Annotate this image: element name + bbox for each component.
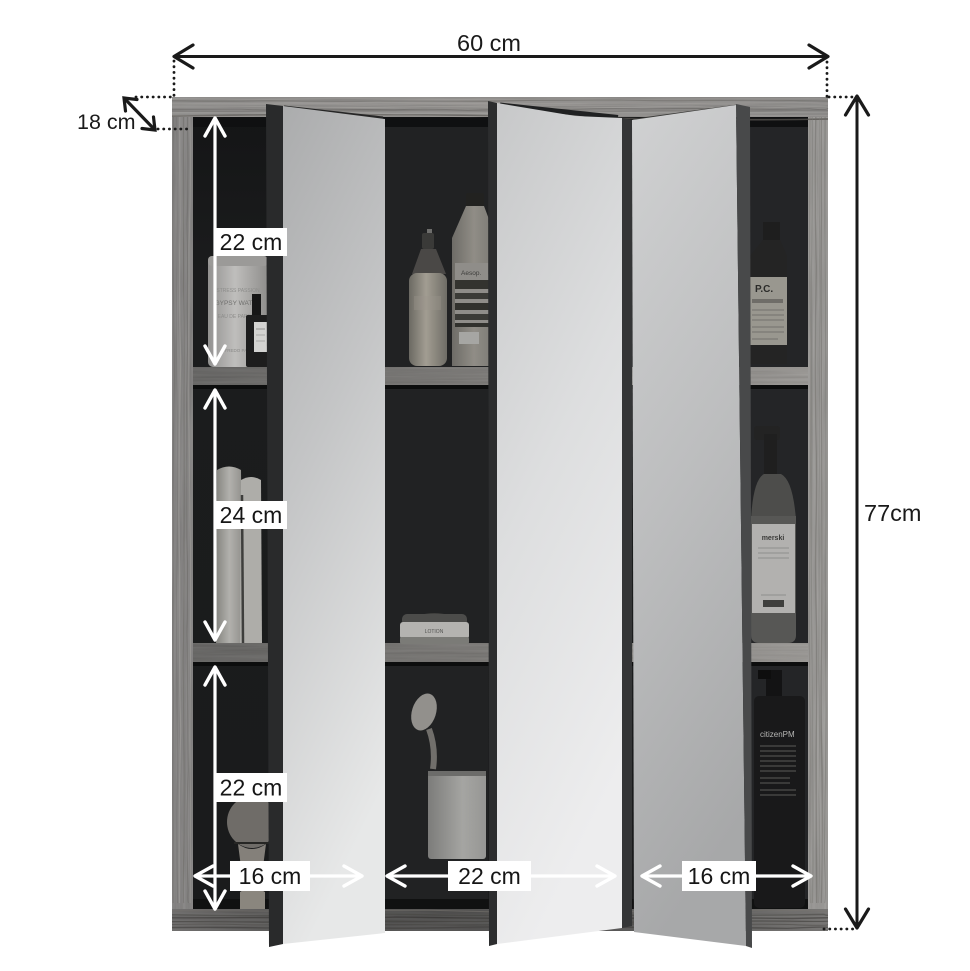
svg-text:merski: merski <box>762 535 785 542</box>
svg-text:22 cm: 22 cm <box>458 863 521 889</box>
svg-text:Aesop.: Aesop. <box>461 270 481 277</box>
svg-text:citizenPM: citizenPM <box>760 730 795 739</box>
svg-text:16 cm: 16 cm <box>239 863 302 889</box>
svg-text:P.C.: P.C. <box>755 284 773 295</box>
svg-text:22 cm: 22 cm <box>220 775 283 801</box>
svg-text:18 cm: 18 cm <box>77 110 136 134</box>
svg-text:16 cm: 16 cm <box>688 863 751 889</box>
svg-text:22 cm: 22 cm <box>220 229 283 255</box>
svg-text:24 cm: 24 cm <box>220 502 283 528</box>
svg-text:77cm: 77cm <box>864 500 921 526</box>
svg-text:LOTION: LOTION <box>425 629 444 635</box>
svg-text:60 cm: 60 cm <box>457 30 521 56</box>
svg-text:STRESS PASSION: STRESS PASSION <box>216 288 260 294</box>
